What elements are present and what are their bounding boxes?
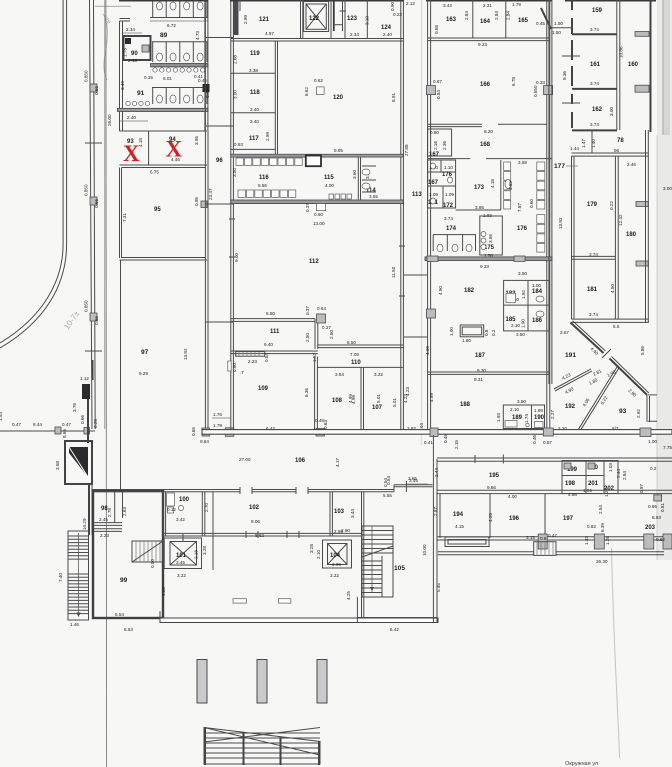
svg-text:123: 123 — [347, 16, 358, 22]
svg-text:7.75: 7.75 — [663, 445, 672, 450]
svg-text:4.00: 4.00 — [508, 494, 517, 499]
svg-text:2.92: 2.92 — [636, 409, 641, 418]
svg-text:165: 165 — [518, 18, 529, 24]
svg-text:163: 163 — [446, 17, 457, 23]
svg-text:6.50: 6.50 — [347, 340, 356, 345]
svg-text:2.34: 2.34 — [126, 27, 135, 32]
svg-text:13.00: 13.00 — [313, 221, 325, 226]
svg-text:0.65: 0.65 — [191, 427, 196, 436]
svg-text:4.25: 4.25 — [346, 591, 351, 600]
svg-text:159: 159 — [592, 8, 603, 14]
svg-text:99: 99 — [120, 577, 128, 584]
svg-text:95: 95 — [154, 207, 161, 213]
svg-text:9.86: 9.86 — [487, 485, 496, 490]
svg-text:164: 164 — [480, 19, 491, 25]
svg-text:2.31: 2.31 — [483, 3, 492, 8]
svg-text:5.01: 5.01 — [392, 398, 397, 407]
svg-text:0.45: 0.45 — [443, 434, 448, 443]
svg-text:3.95: 3.95 — [475, 205, 484, 210]
svg-text:1.73: 1.73 — [123, 48, 128, 57]
svg-text:1.03: 1.03 — [608, 463, 613, 472]
svg-text:0.87: 0.87 — [543, 440, 552, 445]
svg-text:10.86: 10.86 — [619, 46, 624, 58]
svg-text:4.90: 4.90 — [438, 286, 443, 295]
svg-text:198: 198 — [565, 481, 576, 487]
svg-text:1.20: 1.20 — [604, 488, 609, 497]
svg-text:7.40: 7.40 — [58, 573, 63, 582]
svg-text:109: 109 — [258, 386, 269, 392]
svg-text:2.84: 2.84 — [464, 11, 469, 20]
svg-text:3.40: 3.40 — [250, 119, 259, 124]
svg-text:0.46: 0.46 — [532, 435, 537, 444]
svg-text:2.46: 2.46 — [627, 162, 636, 167]
svg-text:0.23: 0.23 — [393, 12, 402, 17]
svg-text:9.95: 9.95 — [334, 148, 343, 153]
svg-text:2.70: 2.70 — [204, 503, 209, 512]
svg-text:2.50: 2.50 — [329, 330, 334, 339]
svg-text:10.00: 10.00 — [422, 544, 427, 556]
svg-text:3.74: 3.74 — [589, 312, 598, 317]
svg-text:1.99: 1.99 — [534, 408, 543, 413]
svg-text:0.95: 0.95 — [648, 504, 657, 509]
svg-text:0.47: 0.47 — [12, 422, 21, 427]
svg-text:2.10: 2.10 — [510, 407, 519, 412]
svg-text:0.850: 0.850 — [84, 184, 89, 196]
svg-text:196: 196 — [509, 516, 520, 522]
svg-text:3.50: 3.50 — [232, 168, 237, 177]
svg-text:2.15: 2.15 — [128, 58, 137, 63]
svg-text:3.58: 3.58 — [518, 160, 527, 165]
svg-text:0.50: 0.50 — [150, 559, 155, 568]
svg-text:3.10: 3.10 — [365, 16, 370, 25]
svg-text:0.63: 0.63 — [323, 420, 328, 429]
svg-text:4.17: 4.17 — [335, 458, 340, 467]
svg-text:3.74: 3.74 — [589, 252, 598, 257]
svg-text:2.63: 2.63 — [122, 507, 127, 516]
svg-text:0.45: 0.45 — [536, 21, 545, 26]
svg-text:0.97: 0.97 — [639, 484, 644, 493]
svg-text:4.57: 4.57 — [265, 31, 274, 36]
svg-text:9.31: 9.31 — [474, 377, 483, 382]
svg-text:194: 194 — [453, 512, 464, 518]
svg-text:5.5: 5.5 — [613, 324, 620, 329]
svg-text:96: 96 — [614, 148, 620, 153]
svg-text:0.47: 0.47 — [62, 422, 71, 427]
svg-text:110: 110 — [351, 360, 361, 366]
svg-text:3.45: 3.45 — [176, 560, 185, 565]
svg-text:119: 119 — [250, 51, 260, 57]
svg-text:6.36: 6.36 — [304, 388, 309, 397]
svg-text:0.80: 0.80 — [232, 363, 237, 372]
svg-text:6.62: 6.62 — [304, 87, 309, 96]
svg-text:0.12: 0.12 — [167, 507, 176, 512]
svg-text:3.43: 3.43 — [443, 3, 452, 8]
svg-text:4.23: 4.23 — [403, 394, 408, 403]
svg-text:2.10: 2.10 — [511, 323, 520, 328]
svg-text:0.6: 0.6 — [540, 536, 547, 541]
svg-text:190: 190 — [534, 415, 545, 421]
svg-text:0.60: 0.60 — [529, 199, 534, 208]
svg-text:174: 174 — [446, 226, 457, 232]
svg-text:78: 78 — [617, 138, 624, 144]
svg-text:0.2: 0.2 — [491, 329, 496, 336]
svg-text:5.56: 5.56 — [258, 183, 267, 188]
svg-text:0.93: 0.93 — [234, 142, 243, 147]
svg-text:3.05: 3.05 — [332, 562, 341, 567]
svg-text:189: 189 — [512, 415, 523, 421]
svg-text:2.50: 2.50 — [305, 333, 310, 342]
svg-text:96: 96 — [216, 158, 223, 164]
svg-text:26.30: 26.30 — [596, 559, 608, 564]
svg-text:3.22: 3.22 — [330, 573, 339, 578]
svg-text:13.82: 13.82 — [558, 217, 563, 229]
svg-text:6.78: 6.78 — [511, 77, 516, 86]
svg-text:1.79: 1.79 — [213, 423, 222, 428]
svg-text:113: 113 — [412, 192, 422, 198]
svg-text:7.31: 7.31 — [122, 213, 127, 222]
svg-text:0.850: 0.850 — [84, 300, 89, 312]
svg-text:8.93: 8.93 — [652, 515, 661, 520]
svg-text:8.44: 8.44 — [33, 422, 42, 427]
svg-text:93: 93 — [619, 408, 627, 415]
svg-text:0.47: 0.47 — [548, 533, 557, 538]
svg-text:0.2: 0.2 — [650, 466, 657, 471]
svg-text:2.68: 2.68 — [233, 55, 238, 64]
svg-text:118: 118 — [250, 90, 260, 96]
svg-text:0.37: 0.37 — [305, 306, 310, 315]
svg-text:5.01: 5.01 — [376, 394, 381, 403]
svg-text:Окружная ул: Окружная ул — [565, 761, 598, 767]
svg-text:4.26: 4.26 — [488, 513, 493, 522]
svg-text:166: 166 — [480, 82, 491, 88]
svg-text:4.85: 4.85 — [508, 181, 513, 190]
svg-text:6.50: 6.50 — [266, 311, 275, 316]
svg-text:.7: .7 — [240, 370, 244, 375]
svg-text:0.66: 0.66 — [80, 415, 85, 424]
svg-text:191: 191 — [565, 352, 576, 359]
svg-text:112: 112 — [309, 259, 319, 265]
svg-text:3.22: 3.22 — [177, 573, 186, 578]
svg-text:122: 122 — [309, 16, 320, 22]
svg-text:181: 181 — [587, 287, 598, 293]
svg-text:0.60: 0.60 — [314, 212, 323, 217]
svg-text:27.00: 27.00 — [239, 457, 251, 462]
svg-text:107: 107 — [372, 405, 383, 411]
svg-text:1.09: 1.09 — [429, 192, 438, 197]
svg-text:3.22: 3.22 — [374, 372, 383, 377]
svg-text:3.55: 3.55 — [369, 194, 378, 199]
svg-text:197: 197 — [563, 516, 574, 522]
svg-text:3.74: 3.74 — [590, 27, 599, 32]
svg-text:3.00: 3.00 — [663, 186, 672, 191]
svg-text:0.66: 0.66 — [94, 316, 99, 325]
svg-text:1.00: 1.00 — [648, 439, 657, 444]
svg-text:3.45: 3.45 — [409, 478, 418, 483]
svg-text:1.50: 1.50 — [552, 30, 561, 35]
svg-text:3.28: 3.28 — [309, 544, 314, 553]
svg-text:100: 100 — [179, 497, 190, 503]
svg-text:111: 111 — [270, 329, 280, 335]
svg-text:192: 192 — [565, 404, 576, 410]
svg-text:3.50: 3.50 — [517, 399, 526, 404]
svg-text:89: 89 — [160, 32, 168, 39]
svg-text:6.40: 6.40 — [264, 342, 273, 347]
svg-text:4.00: 4.00 — [425, 346, 430, 355]
svg-text:11.50: 11.50 — [391, 266, 396, 278]
svg-text:6.01: 6.01 — [163, 76, 172, 81]
svg-text:117: 117 — [249, 136, 259, 142]
svg-text:161: 161 — [590, 62, 601, 68]
svg-text:97: 97 — [141, 349, 149, 356]
svg-text:2.36: 2.36 — [442, 141, 447, 150]
svg-text:91: 91 — [137, 90, 145, 97]
svg-text:184: 184 — [532, 289, 543, 295]
svg-text:6.42: 6.42 — [390, 627, 399, 632]
svg-text:2.15: 2.15 — [454, 440, 459, 449]
svg-text:195: 195 — [489, 473, 500, 479]
svg-text:115: 115 — [324, 175, 334, 181]
svg-text:9.29: 9.29 — [139, 371, 148, 376]
svg-text:3.40: 3.40 — [250, 107, 259, 112]
svg-text:3.50: 3.50 — [518, 271, 527, 276]
svg-text:2.44: 2.44 — [616, 469, 621, 478]
svg-text:188: 188 — [460, 402, 471, 408]
svg-text:1.44: 1.44 — [0, 412, 3, 421]
svg-text:0.33: 0.33 — [536, 80, 545, 85]
svg-text:2.84: 2.84 — [506, 11, 511, 20]
svg-text:0.15: 0.15 — [144, 75, 153, 80]
svg-text:9.23: 9.23 — [480, 264, 489, 269]
svg-text:105: 105 — [394, 565, 405, 572]
svg-text:2.44: 2.44 — [434, 468, 439, 477]
svg-text:5.86: 5.86 — [640, 346, 645, 355]
svg-text:1.12: 1.12 — [80, 376, 89, 381]
svg-text:203: 203 — [645, 525, 656, 531]
svg-text:3.74: 3.74 — [590, 81, 599, 86]
svg-text:8.36: 8.36 — [562, 71, 567, 80]
svg-text:116: 116 — [259, 175, 269, 181]
svg-text:3.50: 3.50 — [352, 170, 357, 179]
svg-text:187: 187 — [475, 353, 486, 359]
svg-text:4.68: 4.68 — [568, 492, 577, 497]
svg-text:4.50: 4.50 — [610, 284, 615, 293]
svg-text:0.26: 0.26 — [93, 419, 98, 428]
svg-text:3.00: 3.00 — [233, 90, 238, 99]
svg-text:1.00: 1.00 — [449, 327, 454, 336]
svg-text:168: 168 — [480, 142, 491, 148]
svg-text:2.87: 2.87 — [433, 507, 438, 516]
svg-text:167: 167 — [429, 152, 440, 158]
svg-text:26.00: 26.00 — [107, 114, 112, 126]
svg-text:90: 90 — [131, 51, 138, 57]
svg-text:0.37: 0.37 — [305, 203, 310, 212]
svg-text:3.15: 3.15 — [526, 535, 535, 540]
svg-text:27.88: 27.88 — [404, 144, 409, 156]
svg-text:103: 103 — [334, 509, 345, 515]
svg-text:0.62: 0.62 — [314, 78, 323, 83]
svg-text:3.40: 3.40 — [120, 81, 125, 90]
svg-text:0.81: 0.81 — [660, 503, 665, 512]
svg-text:0.80: 0.80 — [430, 130, 439, 135]
svg-text:23.47: 23.47 — [208, 188, 213, 200]
svg-text:6.53: 6.53 — [124, 627, 133, 632]
svg-text:101: 101 — [176, 553, 187, 559]
svg-text:0.41: 0.41 — [424, 440, 433, 445]
svg-text:160: 160 — [628, 62, 639, 68]
svg-text:0.54: 0.54 — [264, 353, 269, 362]
svg-text:6.75: 6.75 — [150, 170, 159, 175]
svg-text:180: 180 — [626, 232, 637, 238]
svg-text:2.23: 2.23 — [100, 533, 109, 538]
svg-text:6.72: 6.72 — [167, 23, 176, 28]
svg-text:0.64: 0.64 — [200, 439, 209, 444]
svg-text:3.38: 3.38 — [249, 68, 258, 73]
svg-text:4.15: 4.15 — [455, 524, 464, 529]
svg-text:2.99: 2.99 — [243, 15, 248, 24]
svg-text:176: 176 — [517, 226, 528, 232]
svg-text:0.67: 0.67 — [433, 79, 442, 84]
svg-text:120: 120 — [333, 95, 344, 101]
svg-text:13.82: 13.82 — [183, 348, 188, 360]
svg-text:8.20: 8.20 — [484, 129, 493, 134]
svg-text:3.74: 3.74 — [444, 216, 453, 221]
svg-text:1.76: 1.76 — [213, 412, 222, 417]
svg-text:0.22: 0.22 — [609, 201, 614, 210]
svg-text:1.60: 1.60 — [462, 338, 471, 343]
svg-text:2.78: 2.78 — [107, 508, 112, 517]
svg-text:2.40: 2.40 — [127, 115, 136, 120]
svg-text:186: 186 — [532, 318, 543, 324]
svg-text:1.79: 1.79 — [512, 2, 521, 7]
svg-text:0.58: 0.58 — [434, 25, 439, 34]
svg-text:2.99: 2.99 — [265, 132, 270, 141]
svg-text:4.18: 4.18 — [490, 179, 495, 188]
svg-text:2.84: 2.84 — [622, 471, 627, 480]
svg-text:2.16: 2.16 — [433, 141, 438, 150]
svg-text:2.34: 2.34 — [350, 32, 359, 37]
svg-text:167: 167 — [428, 180, 439, 186]
svg-text:0.84: 0.84 — [436, 90, 441, 99]
svg-text:0.550: 0.550 — [533, 85, 538, 97]
svg-text:2.10: 2.10 — [316, 550, 321, 559]
svg-text:2.84: 2.84 — [494, 11, 499, 20]
svg-text:4.25: 4.25 — [161, 587, 166, 596]
svg-text:1.74: 1.74 — [524, 414, 529, 423]
svg-text:121: 121 — [259, 17, 270, 23]
svg-text:172: 172 — [443, 203, 454, 209]
svg-text:3.28: 3.28 — [202, 546, 207, 555]
svg-text:2.23: 2.23 — [248, 359, 257, 364]
svg-text:3.42: 3.42 — [176, 517, 185, 522]
svg-text:9.06: 9.06 — [251, 519, 260, 524]
svg-text:1.26: 1.26 — [605, 536, 610, 545]
svg-text:6.39: 6.39 — [600, 523, 605, 532]
svg-text:1.09: 1.09 — [445, 192, 454, 197]
svg-text:0.850: 0.850 — [84, 70, 89, 82]
svg-text:1.93: 1.93 — [496, 413, 501, 422]
svg-text:3.44: 3.44 — [350, 509, 355, 518]
svg-text:0.66: 0.66 — [94, 86, 99, 95]
svg-text:0.62: 0.62 — [656, 537, 665, 542]
svg-text:2.67: 2.67 — [560, 330, 569, 335]
svg-text:3.76: 3.76 — [72, 403, 77, 412]
svg-text:177: 177 — [554, 163, 565, 170]
svg-text:1.46: 1.46 — [70, 622, 79, 627]
svg-text:2.18: 2.18 — [194, 550, 199, 559]
svg-text:0.8: 0.8 — [484, 329, 489, 336]
svg-text:8.65: 8.65 — [62, 429, 67, 438]
svg-text:0.82: 0.82 — [587, 524, 596, 529]
svg-text:1.47: 1.47 — [581, 139, 586, 148]
svg-text:5.54: 5.54 — [115, 612, 124, 617]
svg-text:0.54: 0.54 — [386, 476, 391, 485]
svg-text:9.23: 9.23 — [478, 42, 487, 47]
svg-text:3.74: 3.74 — [590, 122, 599, 127]
svg-text:2.27: 2.27 — [550, 410, 555, 419]
svg-text:1.44: 1.44 — [570, 146, 579, 151]
svg-text:4.99: 4.99 — [429, 393, 434, 402]
svg-text:201: 201 — [588, 481, 599, 487]
svg-text:7.09: 7.09 — [350, 352, 359, 357]
svg-text:10.29: 10.29 — [82, 518, 87, 530]
svg-text:4.99: 4.99 — [348, 394, 353, 403]
svg-text:3.95: 3.95 — [194, 136, 199, 145]
svg-text:3.00: 3.00 — [609, 107, 614, 116]
svg-text:0.90: 0.90 — [390, 2, 395, 11]
svg-text:179: 179 — [587, 202, 598, 208]
svg-text:0.95: 0.95 — [194, 197, 199, 206]
svg-text:4.73: 4.73 — [195, 31, 200, 40]
svg-text:1.33: 1.33 — [584, 536, 589, 545]
svg-text:12.42: 12.42 — [618, 214, 623, 226]
svg-text:3.56: 3.56 — [488, 234, 493, 243]
svg-text:108: 108 — [332, 398, 343, 404]
svg-text:106: 106 — [295, 458, 306, 464]
svg-text:2.90: 2.90 — [341, 528, 350, 533]
svg-text:3.58: 3.58 — [55, 461, 60, 470]
svg-text:0.27: 0.27 — [322, 325, 331, 330]
svg-text:8.91: 8.91 — [391, 93, 396, 102]
svg-text:X: X — [123, 141, 140, 166]
svg-text:162: 162 — [592, 107, 603, 113]
svg-text:3.50: 3.50 — [516, 332, 525, 337]
svg-text:7.87: 7.87 — [517, 203, 522, 212]
svg-text:102: 102 — [249, 505, 260, 511]
svg-text:1.00: 1.00 — [532, 283, 541, 288]
svg-text:2.54: 2.54 — [598, 505, 603, 514]
svg-text:124: 124 — [381, 25, 392, 31]
svg-text:5.55: 5.55 — [383, 493, 392, 498]
svg-text:0.66: 0.66 — [94, 199, 99, 208]
svg-text:1.90: 1.90 — [521, 319, 526, 328]
svg-text:0.45: 0.45 — [198, 78, 207, 83]
svg-text:4.00: 4.00 — [325, 183, 334, 188]
svg-text:1.10: 1.10 — [444, 165, 453, 170]
svg-text:X: X — [166, 137, 183, 162]
svg-text:1.92: 1.92 — [521, 290, 526, 299]
svg-text:1.50: 1.50 — [554, 21, 563, 26]
svg-text:2.40: 2.40 — [383, 32, 392, 37]
svg-text:182: 182 — [464, 288, 475, 294]
svg-text:104: 104 — [330, 553, 341, 559]
svg-text:173: 173 — [474, 185, 485, 191]
svg-text:3.54: 3.54 — [335, 372, 344, 377]
svg-text:0.64: 0.64 — [317, 306, 326, 311]
svg-text:2.12: 2.12 — [406, 1, 415, 6]
